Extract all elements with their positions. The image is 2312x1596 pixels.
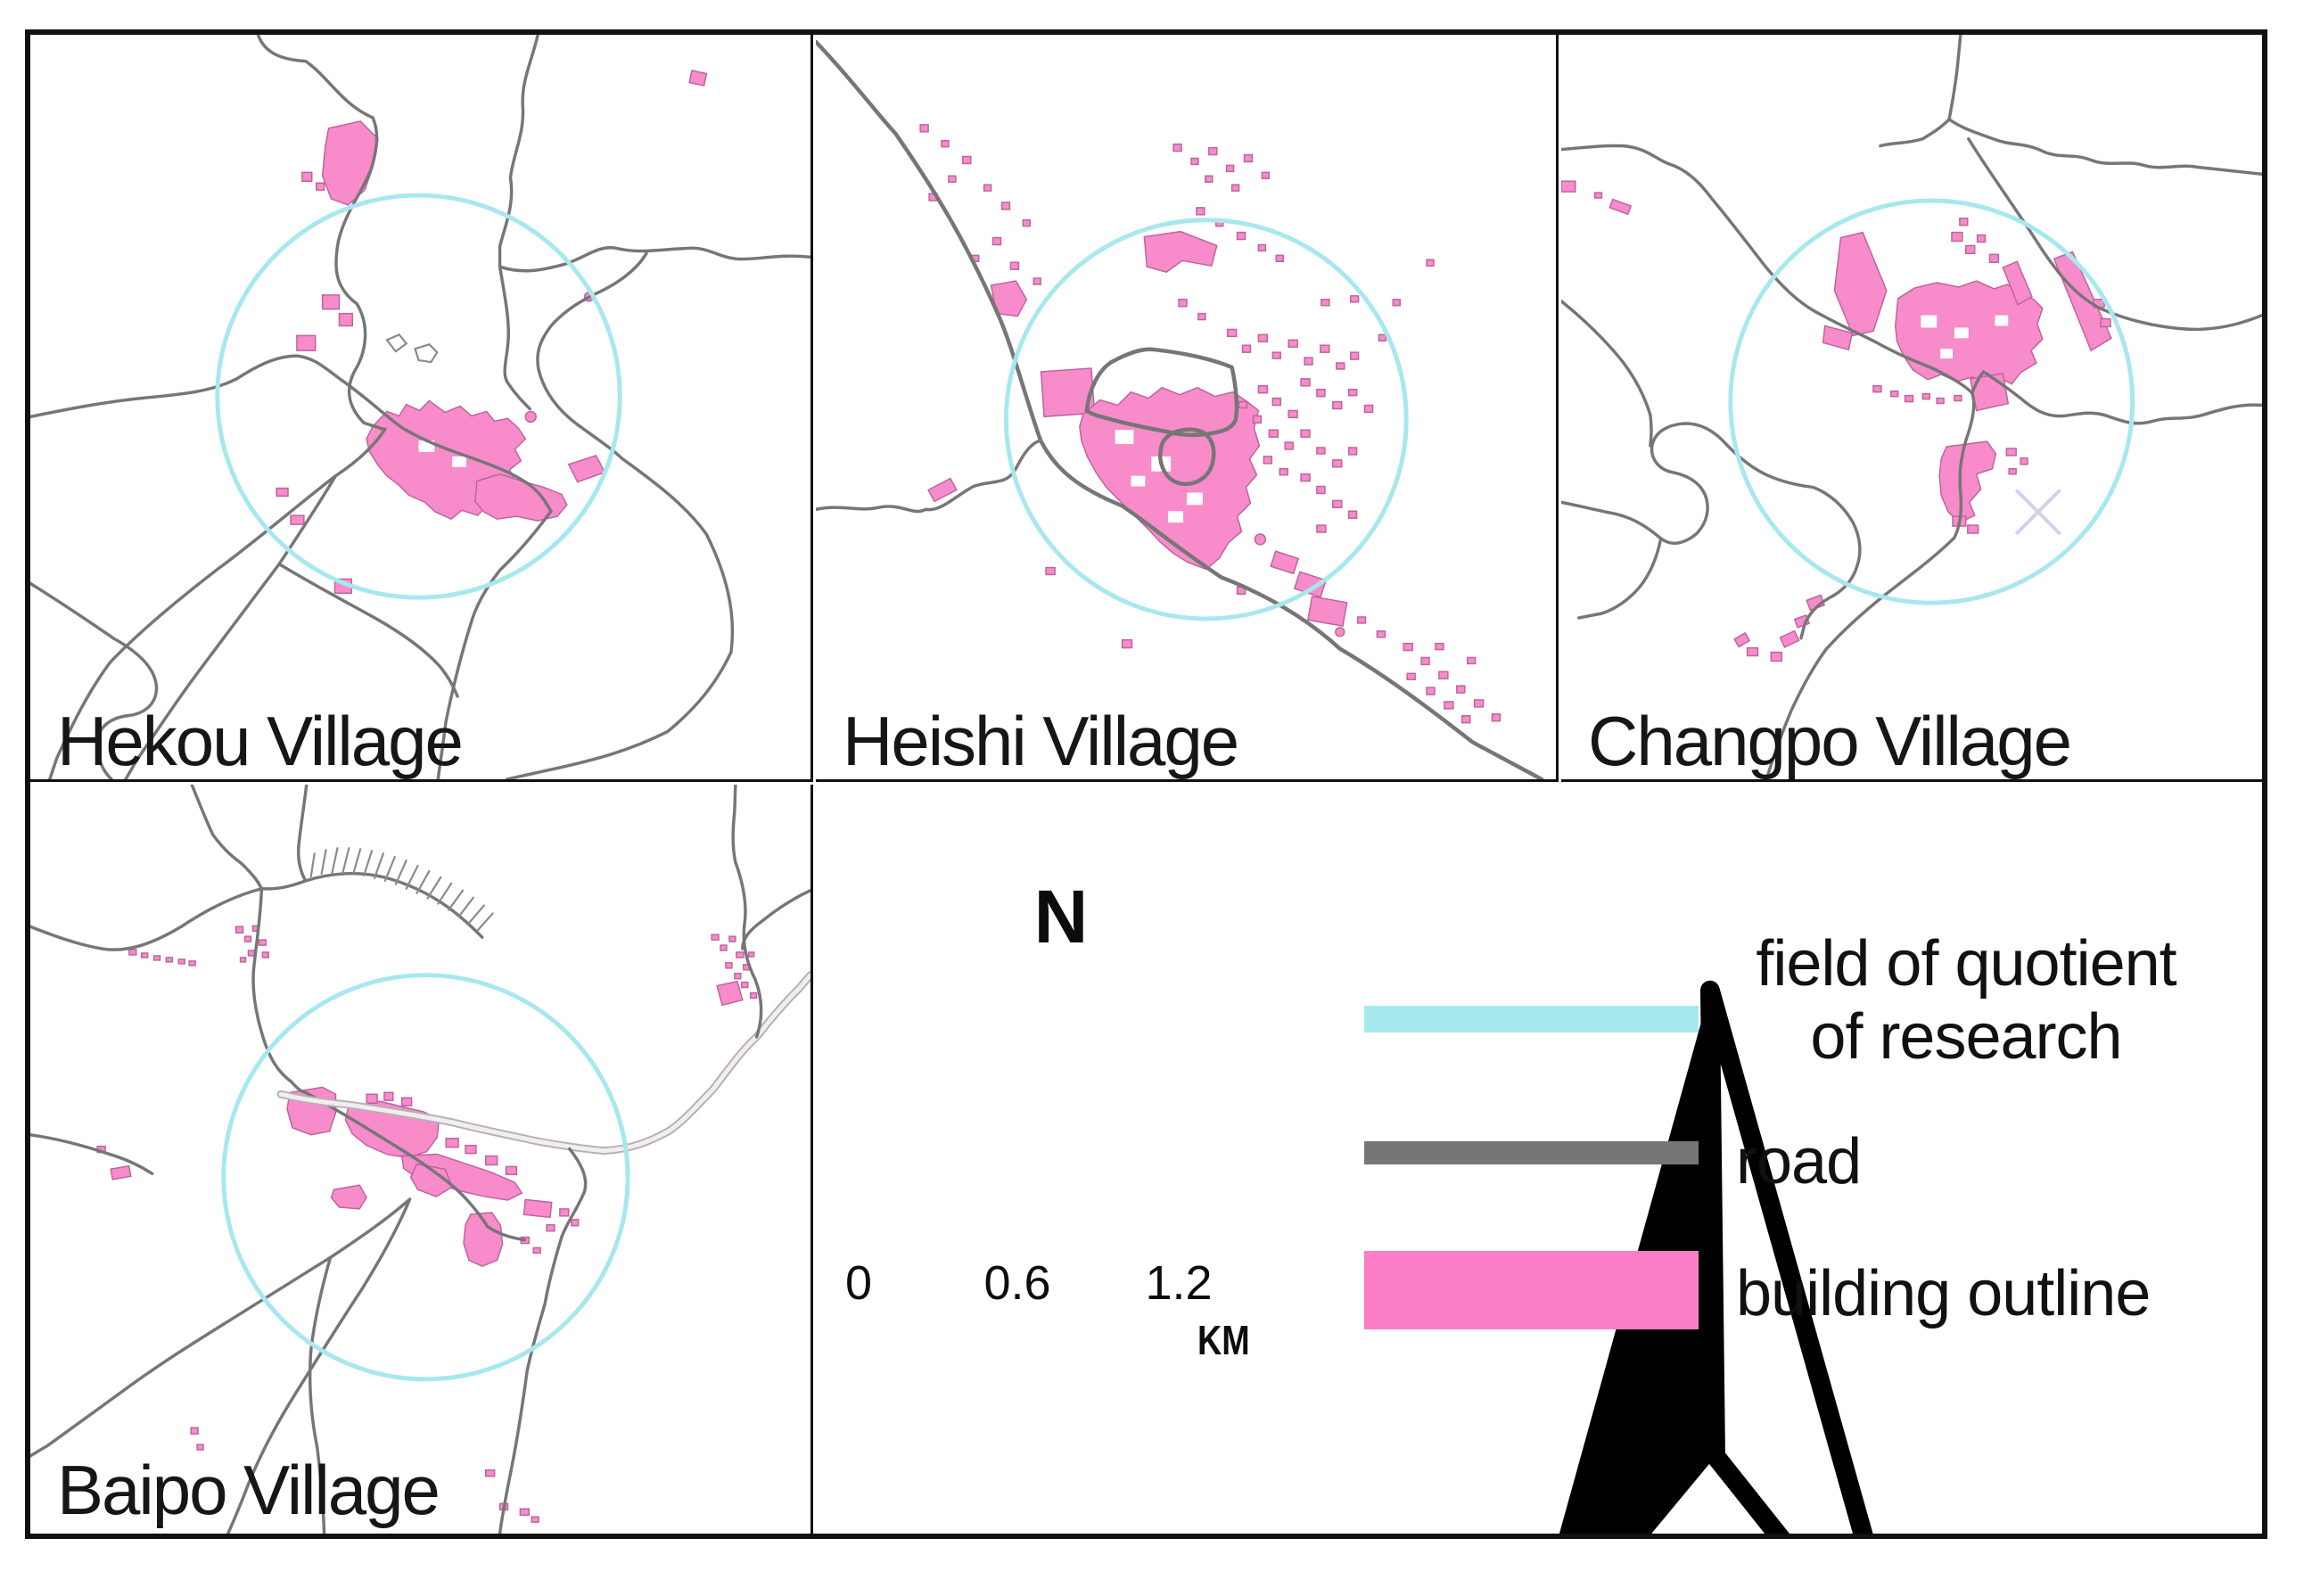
legend-label-research-field-line1: field of quotient (1716, 927, 2216, 1000)
hekou-research-circle (218, 195, 620, 597)
terrace-hatching (311, 848, 493, 930)
changpo-buildings (1561, 181, 2111, 661)
changpo-research-circle (1731, 201, 2133, 603)
map-panel-heishi: Heishi Village (816, 35, 1559, 782)
map-panel-baipo: Baipo Village (30, 785, 813, 1534)
heishi-scatter-upper (1173, 144, 1434, 320)
research-field-swatch (1364, 1006, 1699, 1032)
road-swatch (1364, 1141, 1699, 1164)
changpo-label: Changpo Village (1588, 706, 2070, 776)
hekou-map (30, 35, 810, 779)
heishi-scatter-left (920, 125, 1041, 284)
heishi-map (816, 35, 1556, 779)
heishi-label: Heishi Village (843, 706, 1238, 776)
baipo-buildings (97, 926, 756, 1522)
changpo-map (1561, 35, 2262, 779)
hekou-buildings (276, 70, 706, 593)
figure-canvas: Hekou Village (0, 0, 2312, 1596)
hekou-label: Hekou Village (57, 706, 462, 776)
scale-unit: KM (1197, 1316, 1250, 1364)
legend-label-road: road (1736, 1125, 1861, 1198)
legend-label-research-field-line2: of research (1716, 1000, 2216, 1074)
north-label: N (985, 874, 1137, 960)
changpo-roads (1561, 35, 2262, 779)
map-panel-changpo: Changpo Village (1561, 35, 2262, 782)
hekou-roads (30, 35, 810, 779)
legend-panel: N 0 0.6 1.2 KM field of quotient of rese… (816, 785, 2262, 1534)
baipo-map (30, 785, 810, 1534)
baipo-scatter-topleft (129, 926, 268, 966)
map-panel-hekou: Hekou Village (30, 35, 813, 782)
legend-label-research-field: field of quotient of research (1716, 927, 2216, 1074)
baipo-label: Baipo Village (57, 1455, 439, 1525)
legend-label-building: building outline (1736, 1257, 2150, 1330)
building-swatch (1364, 1251, 1699, 1329)
figure-frame: Hekou Village (25, 29, 2267, 1539)
